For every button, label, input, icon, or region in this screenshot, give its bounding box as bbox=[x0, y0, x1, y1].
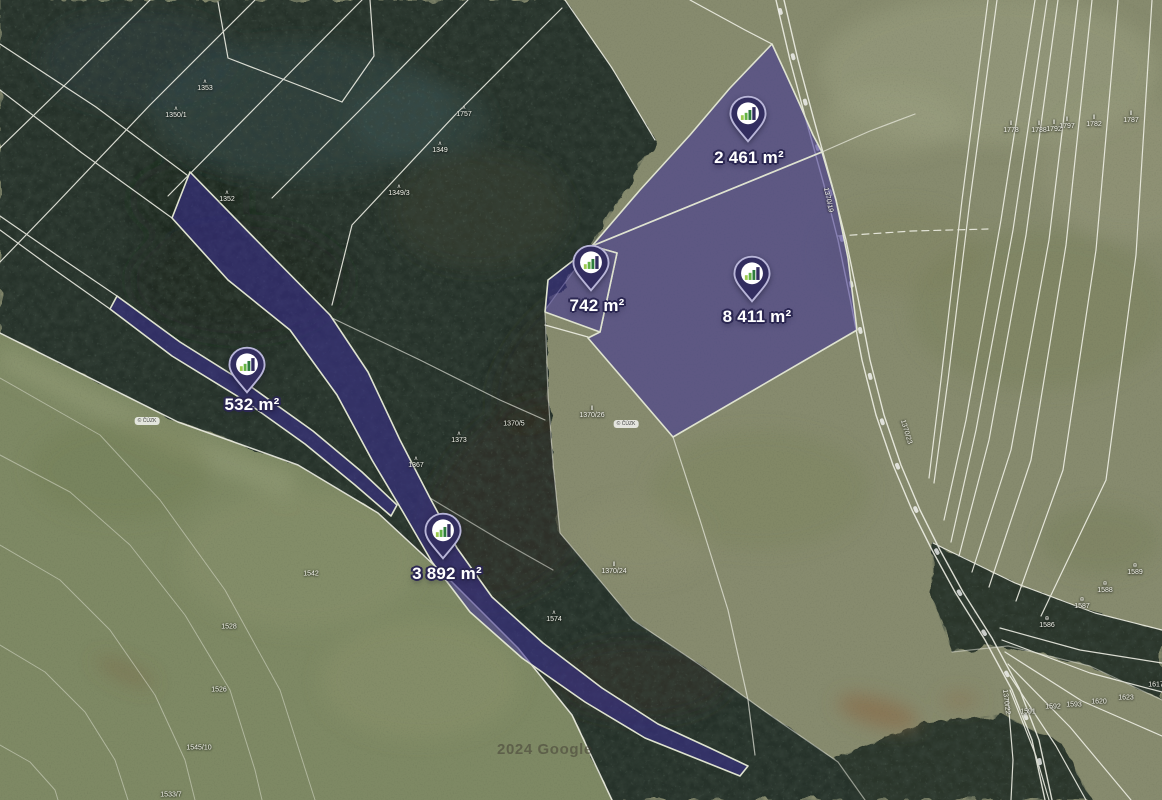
parcel-3892-pin[interactable] bbox=[424, 512, 462, 560]
map-pin-icon bbox=[424, 512, 462, 560]
parcel-532-pin[interactable] bbox=[228, 346, 266, 394]
parcel-8411-pin[interactable] bbox=[733, 255, 771, 303]
map-pin-icon bbox=[733, 255, 771, 303]
map-pin-icon bbox=[729, 95, 767, 143]
map-graphics bbox=[0, 0, 1162, 800]
map-pin-icon bbox=[228, 346, 266, 394]
parcel-2461-pin[interactable] bbox=[729, 95, 767, 143]
satellite-map-viewport[interactable]: ∧1353∧1350/1∧1349∧1757∧1349/3∧1352∧1373∧… bbox=[0, 0, 1162, 800]
map-pin-icon bbox=[572, 244, 610, 292]
parcel-742-pin[interactable] bbox=[572, 244, 610, 292]
